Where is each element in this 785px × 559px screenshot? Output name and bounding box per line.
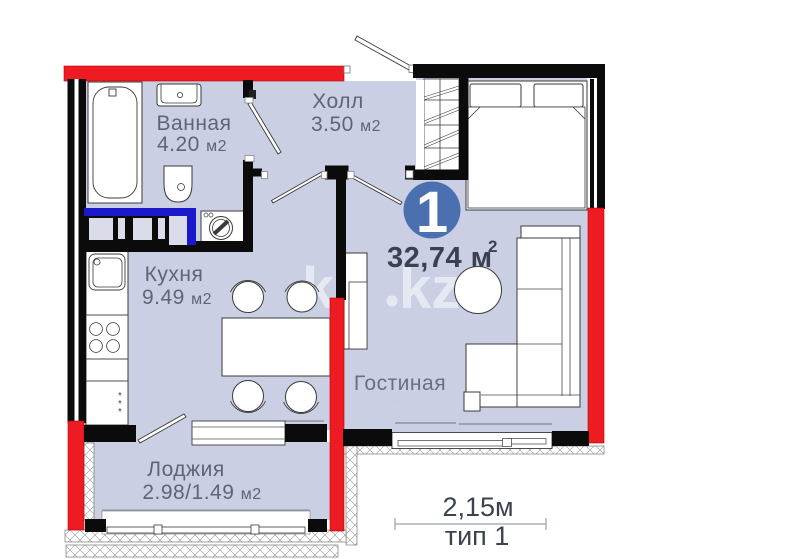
svg-text:1: 1 bbox=[416, 180, 448, 245]
svg-text:Кухня: Кухня bbox=[145, 263, 204, 286]
svg-text:Лоджия: Лоджия bbox=[147, 458, 224, 481]
svg-text:*: * bbox=[118, 407, 122, 418]
svg-text:Холл: Холл bbox=[312, 90, 364, 113]
svg-text:32,74 м: 32,74 м bbox=[387, 242, 493, 274]
svg-text:2: 2 bbox=[488, 237, 497, 256]
svg-text:ОС: ОС bbox=[380, 390, 401, 406]
svg-text:тип 1: тип 1 bbox=[445, 521, 510, 551]
svg-text:2,15м: 2,15м bbox=[442, 492, 513, 522]
svg-text:Ванная: Ванная bbox=[157, 112, 232, 135]
